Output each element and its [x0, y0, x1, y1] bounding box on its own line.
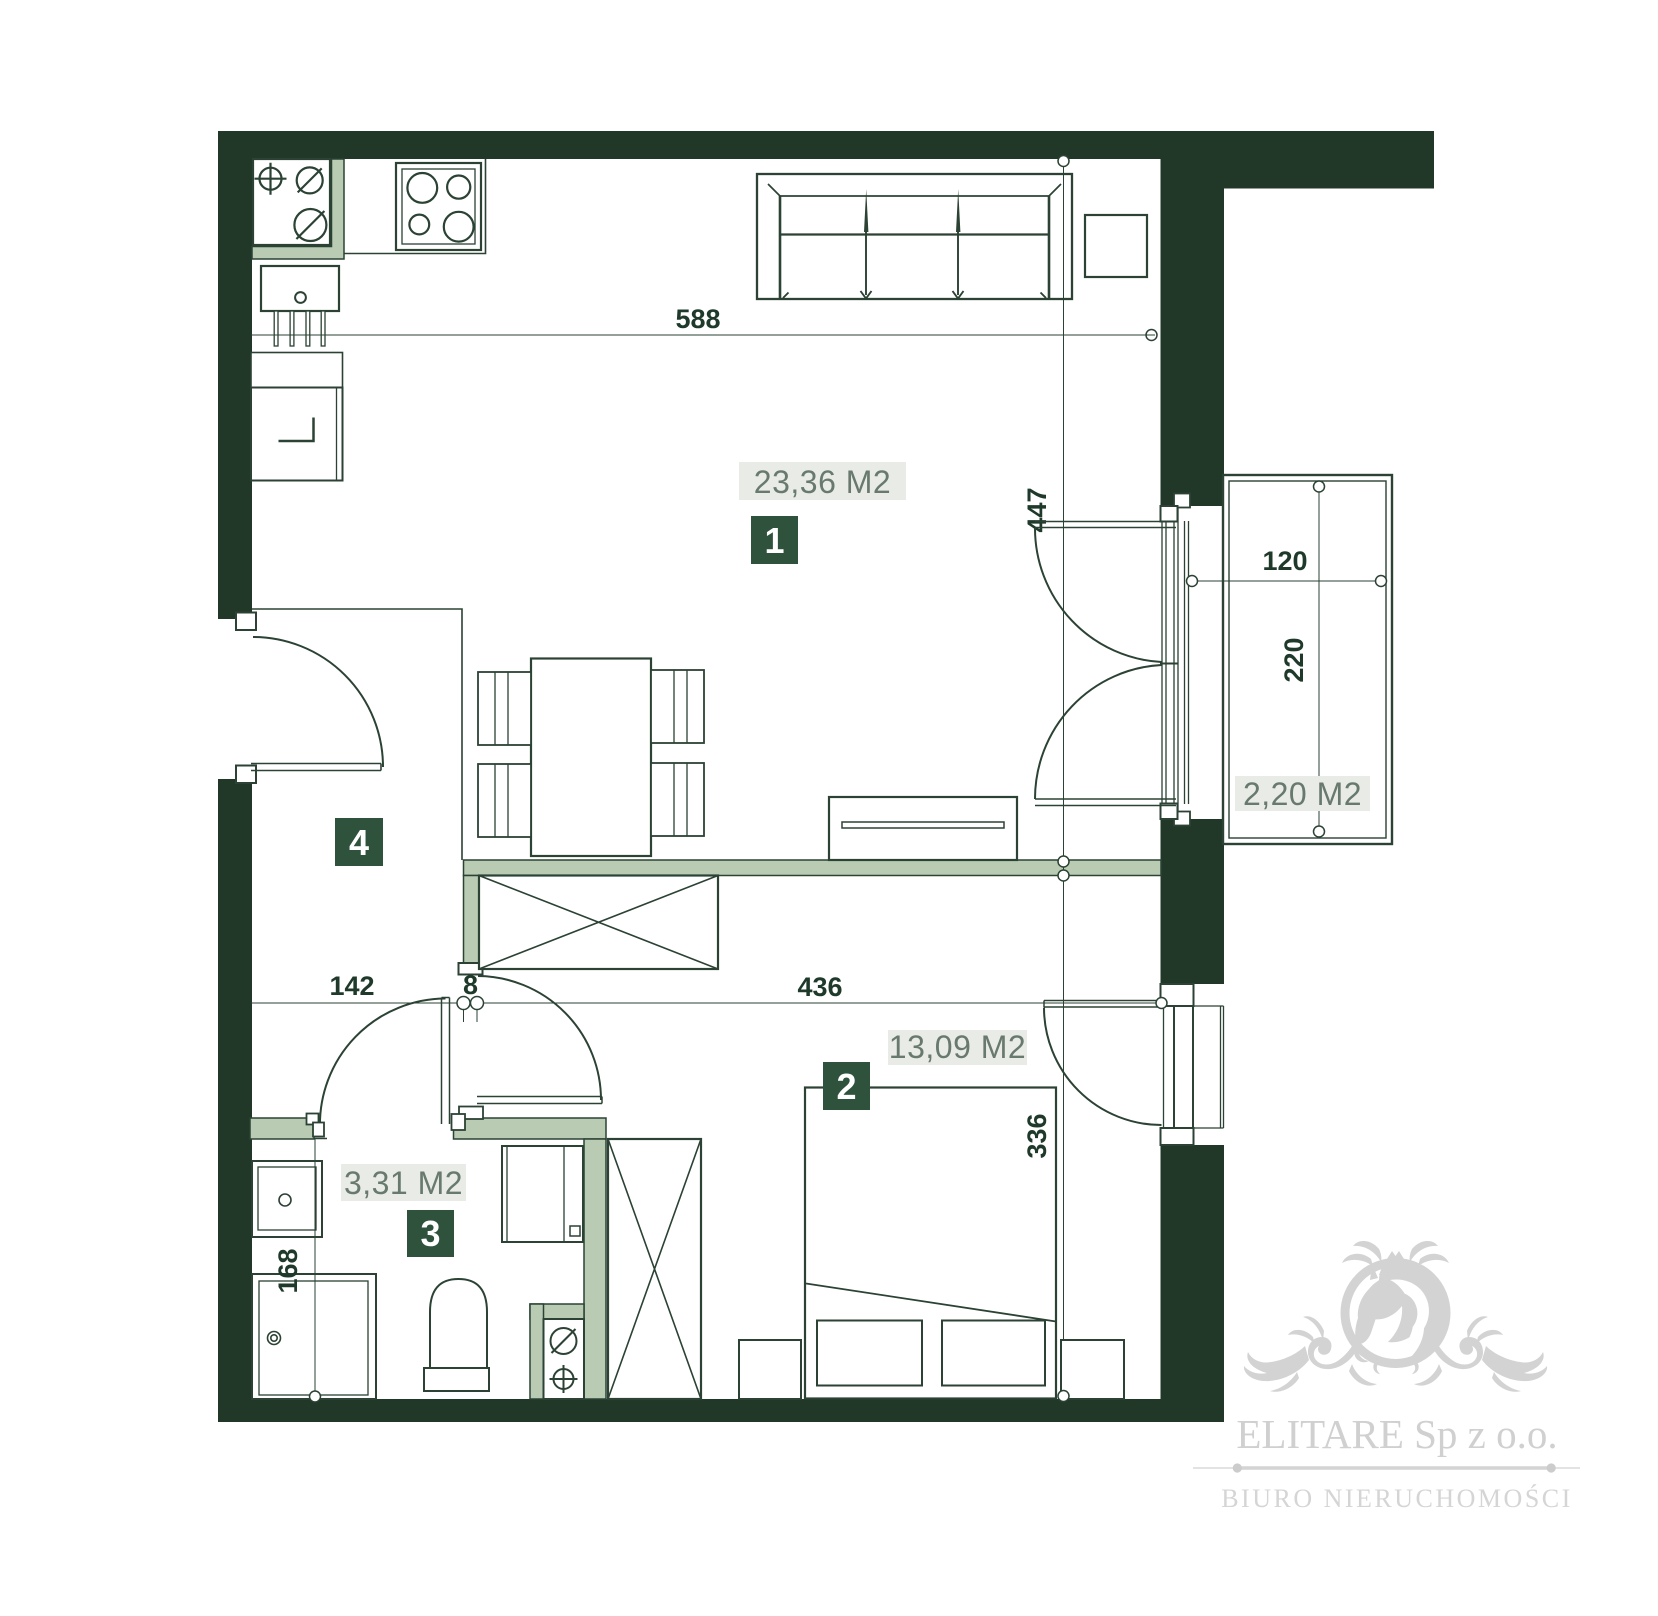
svg-text:588: 588	[675, 304, 720, 334]
svg-text:220: 220	[1279, 637, 1309, 682]
svg-text:447: 447	[1022, 487, 1052, 532]
svg-text:ELITARE Sp z o.o.: ELITARE Sp z o.o.	[1236, 1411, 1557, 1457]
svg-text:4: 4	[349, 822, 369, 863]
svg-text:2,20 M2: 2,20 M2	[1243, 776, 1362, 812]
svg-text:3: 3	[420, 1213, 440, 1254]
svg-text:336: 336	[1022, 1113, 1052, 1158]
svg-text:BIURO NIERUCHOMOŚCI: BIURO NIERUCHOMOŚCI	[1221, 1484, 1573, 1513]
svg-text:2: 2	[836, 1066, 856, 1107]
svg-text:23,36 M2: 23,36 M2	[754, 464, 891, 500]
svg-text:8: 8	[463, 970, 478, 1000]
svg-text:13,09 M2: 13,09 M2	[889, 1029, 1026, 1065]
svg-text:3,31 M2: 3,31 M2	[344, 1165, 463, 1201]
svg-text:142: 142	[329, 971, 374, 1001]
svg-text:436: 436	[797, 972, 842, 1002]
svg-text:120: 120	[1262, 546, 1307, 576]
svg-text:168: 168	[273, 1248, 303, 1293]
svg-text:1: 1	[764, 520, 784, 561]
